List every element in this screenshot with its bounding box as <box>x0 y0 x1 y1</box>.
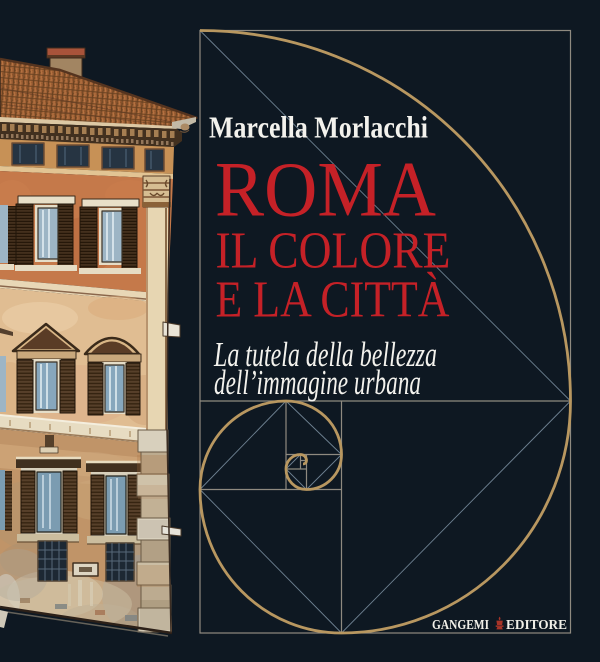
svg-text:Marcella Morlacchi: Marcella Morlacchi <box>209 111 428 145</box>
svg-text:ROMA: ROMA <box>215 146 436 233</box>
svg-text:GANGEMI: GANGEMI <box>432 617 489 632</box>
svg-text:dell’immagine urbana: dell’immagine urbana <box>214 363 421 402</box>
svg-text:E LA CITTÀ: E LA CITTÀ <box>216 271 450 329</box>
svg-text:EDITORE: EDITORE <box>506 617 567 632</box>
